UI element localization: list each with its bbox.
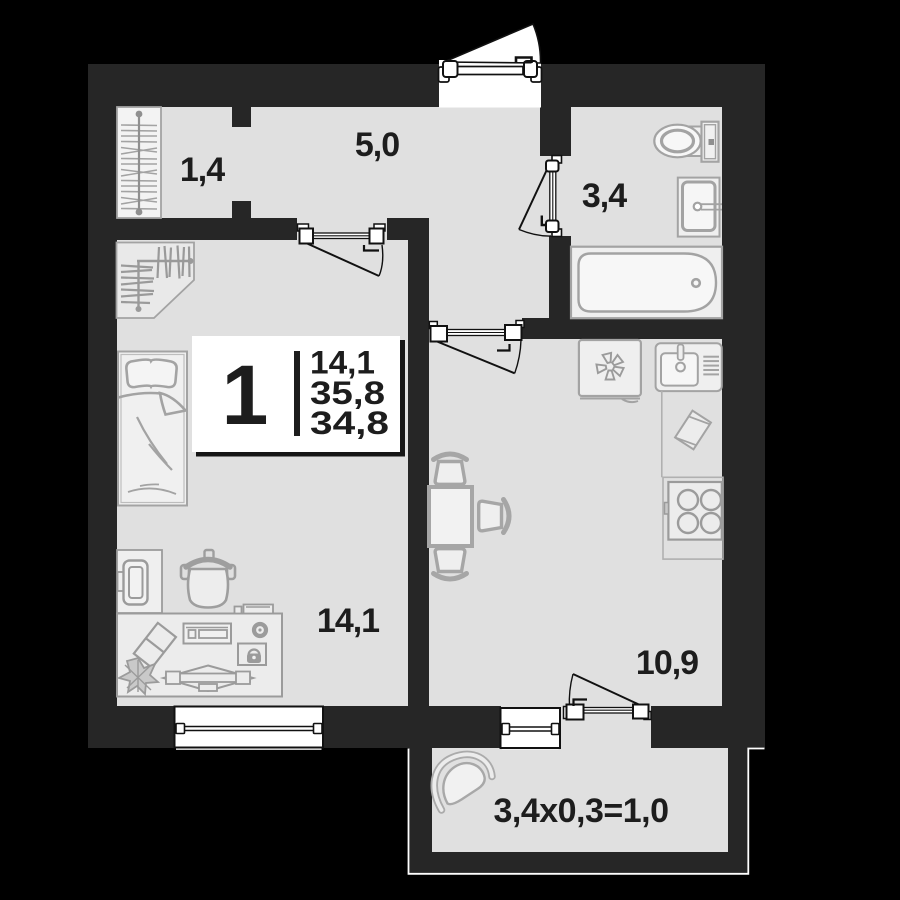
svg-text:10,9: 10,9 xyxy=(636,644,698,682)
svg-text:3,4: 3,4 xyxy=(582,177,627,215)
svg-text:1,4: 1,4 xyxy=(180,151,225,189)
svg-text:34,8: 34,8 xyxy=(310,405,389,441)
svg-text:5,0: 5,0 xyxy=(355,126,399,164)
svg-text:3,4x0,3=1,0: 3,4x0,3=1,0 xyxy=(493,792,668,830)
svg-text:14,1: 14,1 xyxy=(317,602,379,640)
svg-text:1: 1 xyxy=(222,348,269,442)
